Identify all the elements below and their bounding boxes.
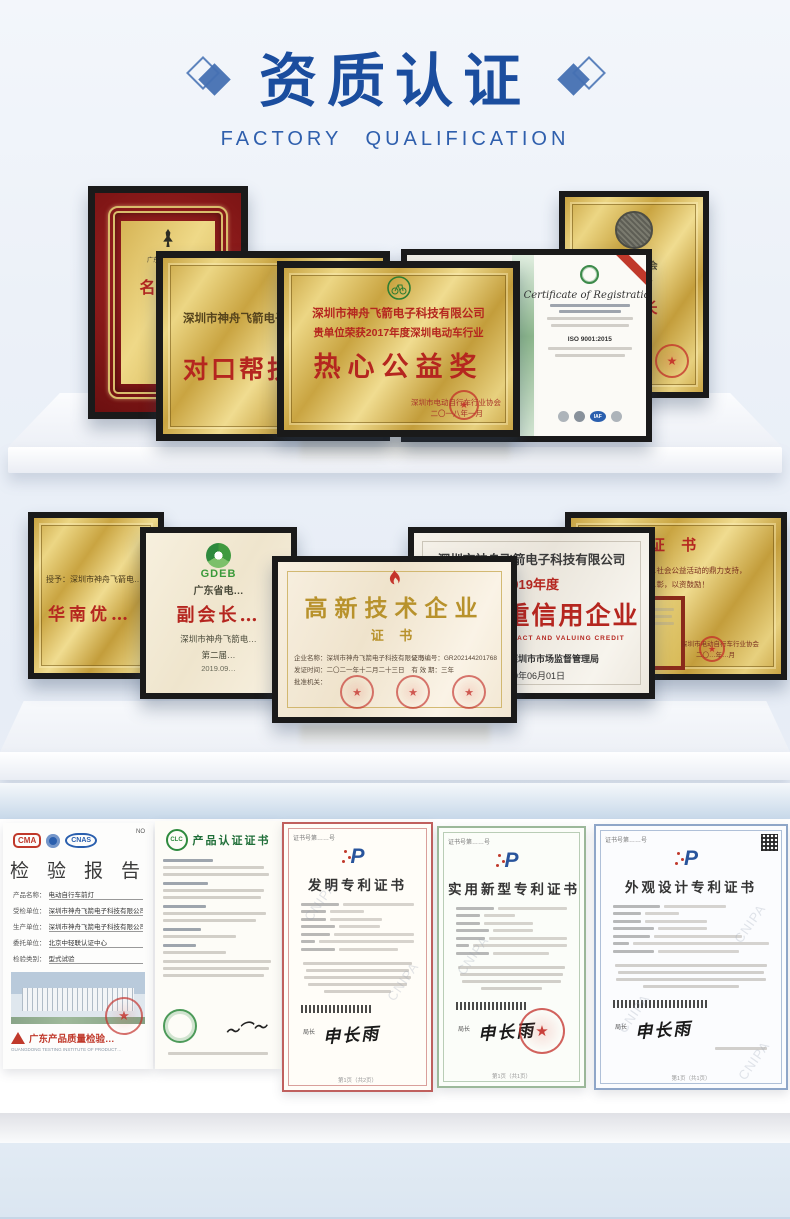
barcode bbox=[456, 1002, 526, 1010]
utility-patent-cert: 证书号第……号 P 实用新型专利证书 局长 申长雨 ★ 第1页（共1页） CNI… bbox=[437, 826, 586, 1088]
torch-logo-icon bbox=[387, 569, 402, 589]
report-field-row: 委托单位： 北京中轻联认证中心 bbox=[13, 937, 143, 948]
hitech-field-date: 发证时间：二〇二一年十二月二十三日 bbox=[294, 664, 424, 674]
product-certification-cert: CLC 产品认证证书 〜⌒〜 bbox=[155, 821, 281, 1069]
hitech-validity: 有 效 期：三年 bbox=[411, 664, 497, 674]
cma-logo-icon: CMA bbox=[13, 833, 41, 848]
patent-paragraph-lines bbox=[456, 962, 567, 994]
iso-title: Certificate of Registration bbox=[524, 290, 646, 301]
page-title: 资质认证 bbox=[259, 34, 531, 118]
product-cert-title: 产品认证证书 bbox=[193, 832, 271, 848]
field-label: 生产单位： bbox=[13, 921, 46, 931]
shelf-2-reflection bbox=[300, 724, 490, 748]
gongyi-org: 深圳市电动自行车行业协会 bbox=[411, 397, 501, 408]
report-field-row: 产品名称： 电动自行车前灯 bbox=[13, 889, 143, 900]
red-star-seal-icon: ★ bbox=[655, 344, 689, 378]
green-ring-icon bbox=[580, 265, 599, 284]
report-field-row: 检验类别： 型式试验 bbox=[13, 953, 143, 964]
inspection-report-cert: NO CMA CNAS 检 验 报 告 产品名称： 电动自行车前灯 受检单位： … bbox=[3, 823, 153, 1069]
barcode bbox=[613, 1000, 708, 1008]
report-title: 检 验 报 告 bbox=[3, 856, 153, 883]
blue-gradient-band bbox=[0, 783, 790, 819]
patent-field-lines bbox=[605, 900, 777, 953]
cnipa-logo-icon: P bbox=[448, 848, 575, 872]
cnas-logo-icon: CNAS bbox=[65, 833, 97, 848]
commissioner-signature: 申长雨 bbox=[322, 1019, 381, 1048]
iaf-logo-icon: IAF bbox=[590, 411, 606, 422]
hitech-certificate-face: 高新技术企业 证 书 企业名称：深圳市神舟飞箭电子科技有限公司 发证时间：二〇二… bbox=[278, 562, 511, 717]
field-label: 检验类别： bbox=[13, 953, 46, 963]
plaque-gdeb-face: GDEB 广东省电… 副会长… 深圳市神舟飞箭电… 第二届… 2019.09… bbox=[146, 533, 291, 693]
cert-mark-icon bbox=[611, 411, 622, 422]
patent-page-note: 第1页（共2页） bbox=[293, 1076, 422, 1084]
utility-patent-title: 实用新型专利证书 bbox=[448, 878, 575, 898]
iso-standard: ISO 9001:2015 bbox=[568, 336, 612, 343]
commissioner-signature: 申长雨 bbox=[634, 1014, 693, 1043]
red-seal-icon: ★ bbox=[340, 675, 374, 709]
diamond-decoration-right-icon bbox=[557, 55, 603, 97]
hitech-certificate: 高新技术企业 证 书 企业名称：深圳市神舟飞箭电子科技有限公司 发证时间：二〇二… bbox=[272, 556, 517, 723]
gdeb-company: 深圳市神舟飞箭电… bbox=[180, 633, 257, 645]
patent-page-note: 第1页（共1页） bbox=[605, 1074, 777, 1082]
iso-company-lines bbox=[540, 301, 640, 331]
report-org-name: 广东产品质量检验… bbox=[29, 1031, 115, 1045]
patent-paragraph-lines bbox=[613, 960, 769, 992]
gongyi-award-line: 贵单位荣获2017年度深圳电动车行业 bbox=[313, 325, 483, 340]
gdeb-logo-text: GDEB bbox=[201, 568, 237, 580]
gongyi-title: 热心公益奖 bbox=[314, 345, 484, 384]
patent-field-lines bbox=[293, 898, 422, 951]
hitech-field-company: 企业名称：深圳市神舟飞箭电子科技有限公司 bbox=[294, 652, 424, 662]
accreditation-logo-icon bbox=[46, 834, 60, 848]
red-star-seal-icon: ★ bbox=[699, 636, 725, 662]
gdeb-title: 副会长… bbox=[177, 601, 261, 627]
gdeb-date: 2019.09… bbox=[201, 664, 236, 673]
qualification-section: 资质认证 FACTORY QUALIFICATION 广东省中山市… 名誉… 何… bbox=[0, 0, 790, 1219]
national-emblem-seal-icon: ★ bbox=[519, 1008, 565, 1054]
cnipa-logo-icon: P bbox=[605, 846, 777, 870]
page-subtitle: FACTORY QUALIFICATION bbox=[0, 128, 790, 151]
patent-cert-number: 证书号第……号 bbox=[605, 835, 777, 844]
patent-field-lines bbox=[448, 902, 575, 955]
patent-cert-number: 证书号第……号 bbox=[448, 837, 575, 846]
patent-signature-row: 局长 申长雨 bbox=[303, 1021, 412, 1046]
huanan-line: 授予：深圳市神舟飞箭电… bbox=[46, 574, 142, 585]
hitech-subtitle: 证 书 bbox=[371, 625, 419, 644]
diamond-decoration-left-icon bbox=[187, 55, 233, 97]
patent-paragraph-lines bbox=[301, 958, 414, 997]
patent-cert-number: 证书号第……号 bbox=[293, 833, 422, 842]
hitech-cert-number: 证书编号：GR202144201768 bbox=[411, 652, 497, 662]
green-seal-icon bbox=[163, 1009, 197, 1043]
zhengshu-line2: …彰，以资鼓励！ bbox=[649, 578, 747, 592]
field-value: 北京中轻联认证中心 bbox=[49, 937, 144, 948]
hitech-title: 高新技术企业 bbox=[305, 589, 485, 623]
field-label: 受检单位： bbox=[13, 905, 46, 915]
clc-logo-icon: CLC bbox=[166, 829, 188, 851]
field-value: 深圳市神舟飞箭电子科技有限公司 bbox=[49, 905, 144, 916]
gold-inner-border bbox=[41, 525, 151, 666]
zhengshu-line1: …社会公益活动的鼎力支持， bbox=[649, 564, 747, 578]
zhengshu-title: 证 书 bbox=[650, 534, 702, 555]
iso-footer-logos: IAF bbox=[558, 411, 622, 422]
chief-label: 局长 bbox=[615, 1024, 627, 1033]
iso-right-page: Certificate of Registration ISO 9001:201… bbox=[534, 255, 646, 436]
plaque-gongyi: 深圳市神舟飞箭电子科技有限公司 贵单位荣获2017年度深圳电动车行业 热心公益奖… bbox=[277, 261, 520, 437]
patent-signature-row: 局长 申长雨 ★ bbox=[458, 1018, 565, 1043]
product-cert-header: CLC 产品认证证书 bbox=[155, 829, 281, 851]
invention-patent-cert: 证书号第……号 P 发明专利证书 局长 申长雨 第1页（共2页） CNIPA C… bbox=[282, 822, 433, 1092]
report-org-english: GUANGDONG TESTING INSTITUTE OF PRODUCT… bbox=[11, 1047, 145, 1052]
field-value: 深圳市神舟飞箭电子科技有限公司 bbox=[49, 921, 144, 932]
cert-mark-icon bbox=[574, 411, 585, 422]
plaque-gongyi-face: 深圳市神舟飞箭电子科技有限公司 贵单位荣获2017年度深圳电动车行业 热心公益奖… bbox=[284, 268, 513, 430]
report-no-label: NO bbox=[136, 829, 145, 835]
field-label: 委托单位： bbox=[13, 937, 46, 947]
gdeb-org: 广东省电… bbox=[194, 582, 244, 597]
hitech-right-fields: 证书编号：GR202144201768 有 效 期：三年 bbox=[411, 650, 497, 676]
bicycle-emblem-icon bbox=[387, 276, 411, 300]
zhengshu-body: …社会公益活动的鼎力支持， …彰，以资鼓励！ bbox=[649, 564, 747, 591]
report-field-row: 生产单位： 深圳市神舟飞箭电子科技有限公司 bbox=[13, 921, 143, 932]
triangle-logo-icon bbox=[11, 1032, 25, 1044]
gdeb-logo-icon bbox=[206, 543, 231, 568]
bottom-blue-footer bbox=[0, 1143, 790, 1219]
red-seal-icon: ★ bbox=[452, 675, 486, 709]
barcode bbox=[301, 1005, 372, 1013]
field-value: 型式试验 bbox=[49, 953, 144, 964]
invention-patent-title: 发明专利证书 bbox=[293, 874, 422, 894]
patent-page-note: 第1页（共1页） bbox=[448, 1072, 575, 1080]
report-logo-row: CMA CNAS bbox=[13, 833, 143, 848]
bottom-shelf-strip bbox=[0, 1113, 790, 1143]
design-patent-cert: 证书号第……号 P 外观设计专利证书 局长 申长雨 第1页（共1页） CNIPA… bbox=[594, 824, 788, 1090]
association-emblem-icon bbox=[615, 211, 653, 249]
red-star-seal-icon: ★ bbox=[105, 997, 143, 1035]
cert-mark-icon bbox=[558, 411, 569, 422]
field-value: 电动自行车前灯 bbox=[49, 889, 144, 900]
iso-scope-lines bbox=[540, 343, 640, 361]
section-header: 资质认证 FACTORY QUALIFICATION bbox=[0, 34, 790, 151]
gongyi-company: 深圳市神舟飞箭电子科技有限公司 bbox=[312, 305, 485, 321]
product-cert-text-lines bbox=[155, 859, 281, 977]
gdeb-session: 第二届… bbox=[201, 649, 235, 661]
cnipa-logo-icon: P bbox=[293, 844, 422, 868]
dark-emblem-icon bbox=[160, 229, 176, 247]
report-field-row: 受检单位： 深圳市神舟飞箭电子科技有限公司 bbox=[13, 905, 143, 916]
chief-label: 局长 bbox=[303, 1029, 315, 1038]
signature-scribble: 〜⌒〜 bbox=[224, 1016, 268, 1042]
field-label: 产品名称： bbox=[13, 889, 46, 899]
huanan-title: 华南优… bbox=[48, 600, 132, 625]
shelf-2-front bbox=[0, 752, 790, 780]
design-patent-title: 外观设计专利证书 bbox=[605, 876, 777, 896]
gongyi-date: 二〇一八年一月 bbox=[431, 408, 484, 419]
red-seal-icon: ★ bbox=[396, 675, 430, 709]
patent-signature-row: 局长 申长雨 bbox=[615, 1016, 767, 1041]
chief-label: 局长 bbox=[458, 1026, 470, 1035]
